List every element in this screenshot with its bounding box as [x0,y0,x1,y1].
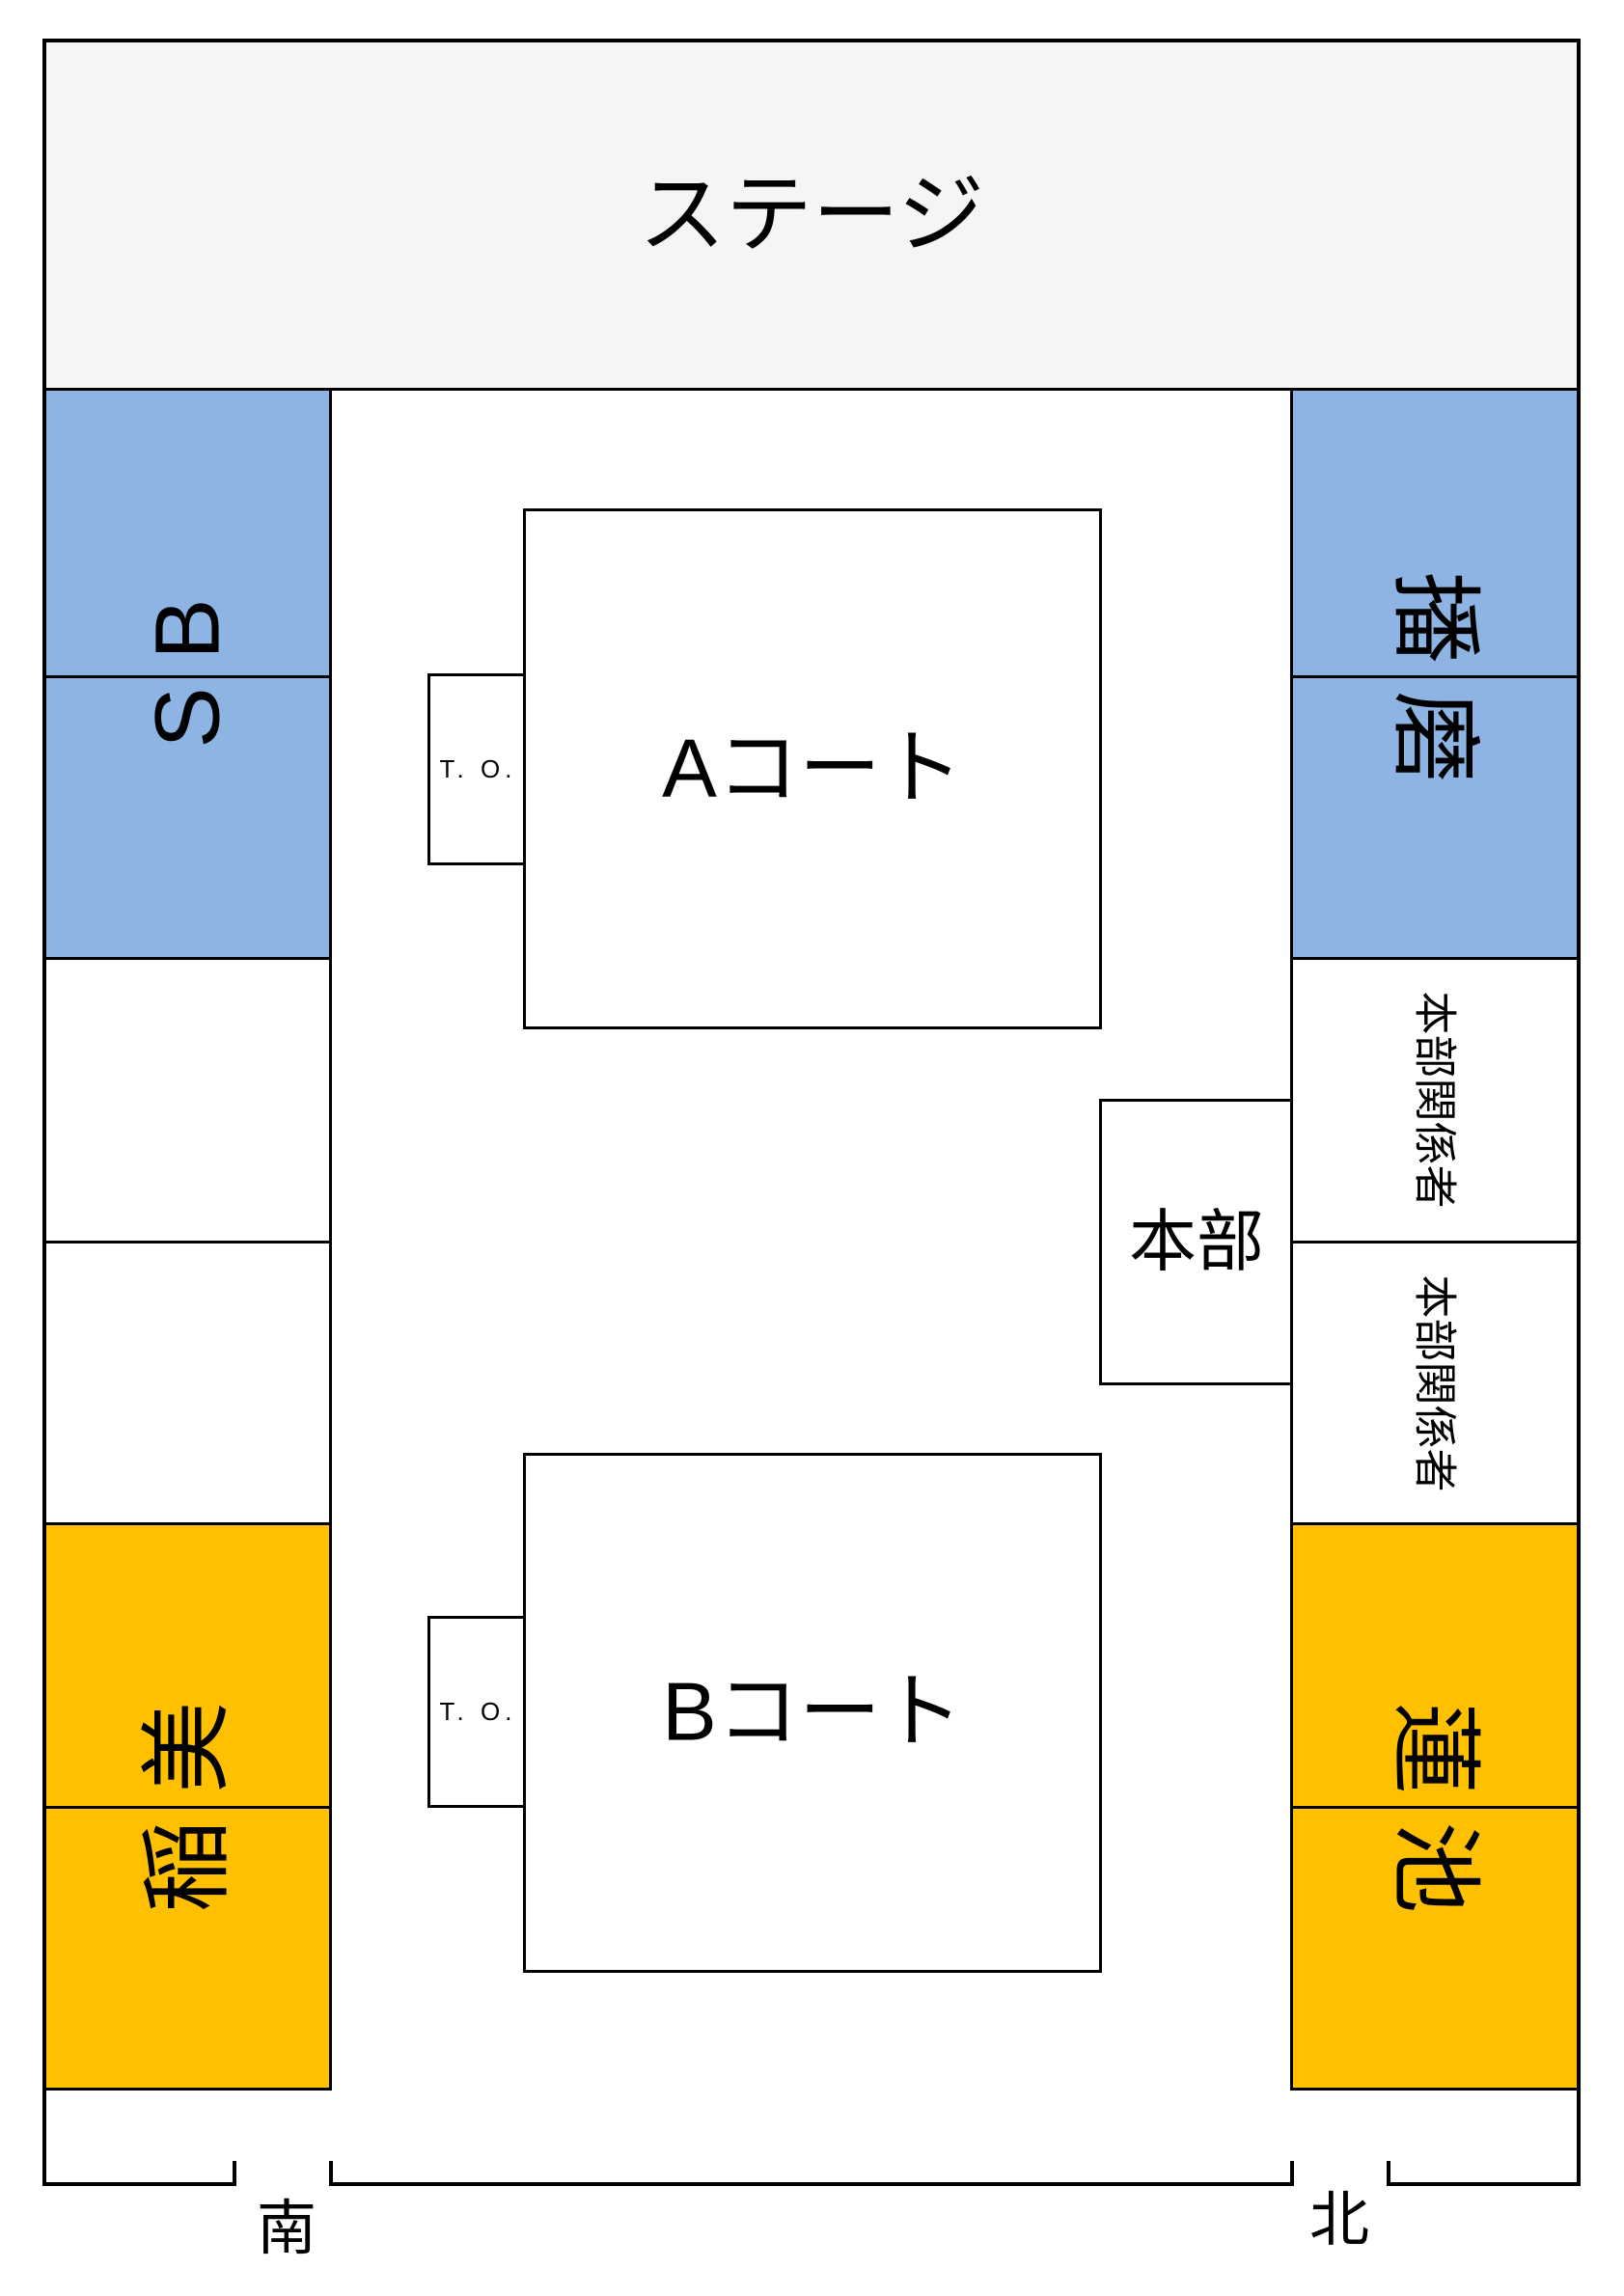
table-officials-b-label: T. O. [435,1699,517,1724]
stage-label: ステージ [639,172,984,259]
north-door-tick-left [1290,2161,1294,2186]
court-b-label: Bコート [662,1672,963,1754]
bottom-wall-segment-left [42,2182,236,2186]
bottom-wall-segment-right [1387,2182,1581,2186]
seat-label-inami: 稲美 [143,1674,234,1940]
seat-label-sb: SB [143,571,234,776]
court-a-label: Aコート [662,728,963,810]
hq-staff-label-1: 本部関係者 [1414,991,1457,1208]
headquarters-label: 本部 [1129,1208,1264,1275]
south-door-tick-left [233,2161,236,2186]
north-door-tick-right [1387,2161,1390,2186]
south-door-tick-right [329,2161,333,2186]
table-officials-a-label: T. O. [435,756,517,781]
bottom-wall-segment-center [329,2182,1294,2186]
hq-staff-label-2: 本部関係者 [1414,1274,1457,1491]
seat-label-hasuike: 蓮池 [1389,1675,1480,1941]
south-entrance-label: 南 [257,2200,317,2259]
north-entrance-label: 北 [1309,2191,1369,2251]
seat-label-harima: 播磨 [1389,544,1480,810]
gym-floorplan: ステージ Aコート Bコート T. O. T. O. 本部 SB 稲美 播磨 蓮… [0,0,1624,2296]
